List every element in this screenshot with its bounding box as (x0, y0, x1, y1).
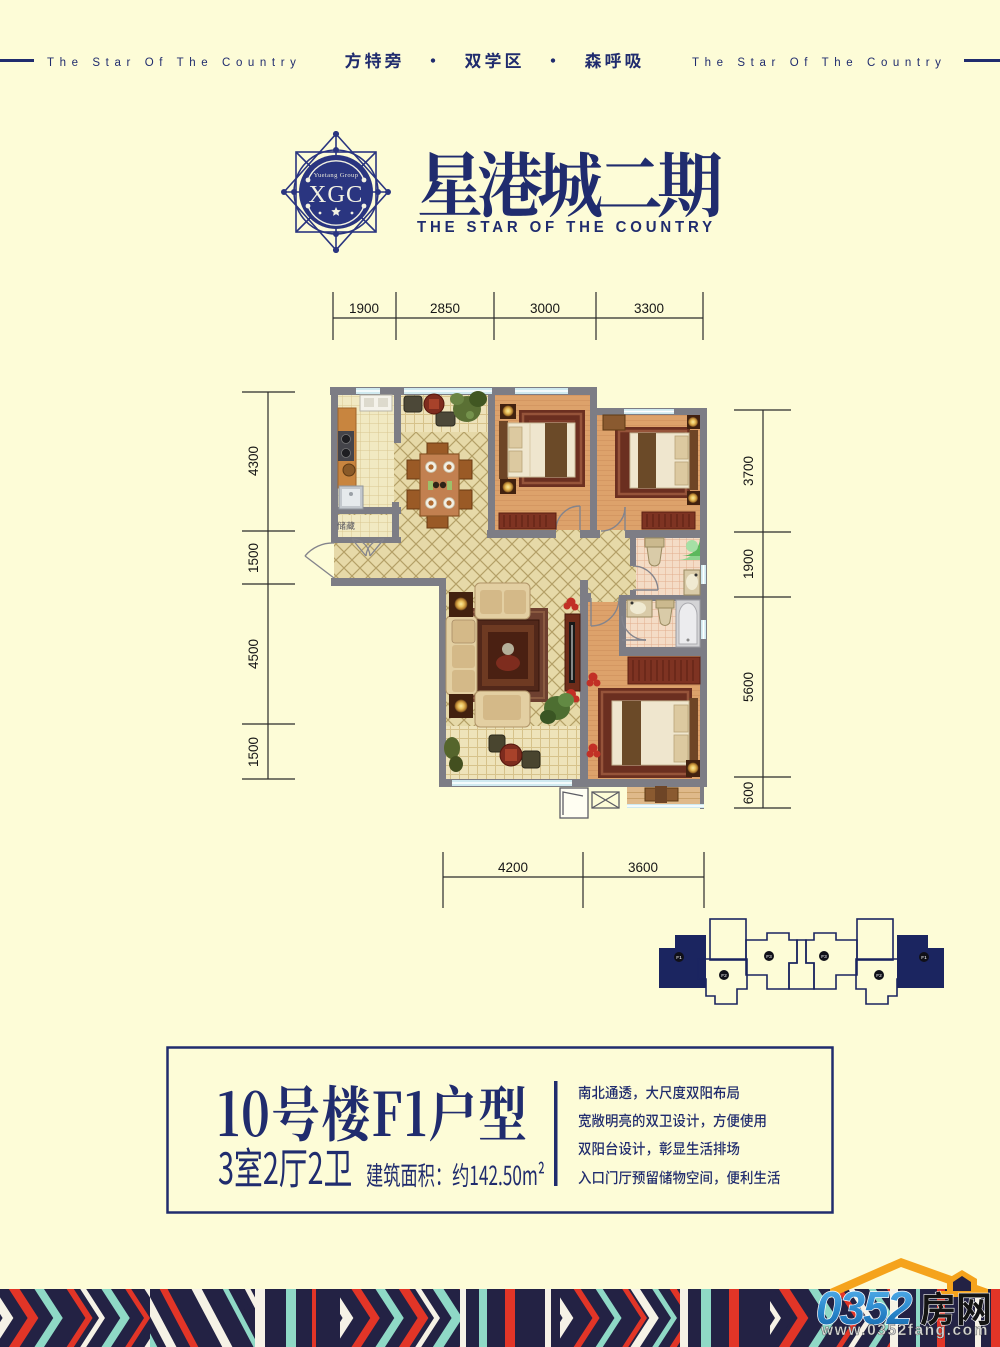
svg-text:2850: 2850 (430, 301, 460, 316)
svg-text:600: 600 (741, 782, 756, 805)
svg-text:F1: F1 (676, 955, 682, 961)
svg-text:XGC: XGC (309, 181, 364, 208)
svg-text:F3: F3 (766, 954, 772, 960)
svg-text:1500: 1500 (246, 737, 261, 767)
svg-text:1900: 1900 (741, 549, 756, 579)
svg-text:F2: F2 (876, 973, 882, 979)
svg-text:3700: 3700 (741, 456, 756, 486)
svg-text:Yuetang Group: Yuetang Group (314, 172, 359, 179)
svg-text:F1: F1 (921, 955, 927, 961)
svg-text:F3: F3 (821, 954, 827, 960)
svg-text:3300: 3300 (634, 301, 664, 316)
svg-text:F2: F2 (721, 973, 727, 979)
svg-text:1900: 1900 (349, 301, 379, 316)
svg-text:The Star Of The Country: The Star Of The Country (47, 57, 302, 69)
svg-text:www.0352fang.com: www.0352fang.com (820, 1322, 989, 1339)
svg-text:4200: 4200 (498, 860, 528, 875)
svg-text:4300: 4300 (246, 446, 261, 476)
svg-text:5600: 5600 (741, 672, 756, 702)
svg-text:1500: 1500 (246, 543, 261, 573)
svg-text:3000: 3000 (530, 301, 560, 316)
svg-text:3600: 3600 (628, 860, 658, 875)
svg-text:The Star Of The Country: The Star Of The Country (692, 57, 947, 69)
svg-text:4500: 4500 (246, 639, 261, 669)
svg-text:THE STAR OF THE COUNTRY: THE STAR OF THE COUNTRY (417, 219, 716, 236)
